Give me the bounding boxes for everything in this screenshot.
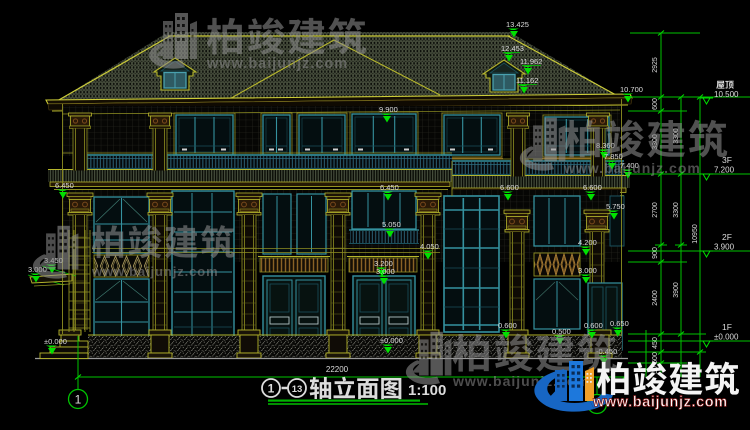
svg-text:www.baijunjz.com: www.baijunjz.com	[592, 395, 728, 411]
svg-text:13.425: 13.425	[506, 20, 529, 29]
svg-text:±0.000: ±0.000	[380, 336, 403, 345]
svg-text:13: 13	[292, 384, 303, 395]
svg-text:600: 600	[652, 98, 659, 110]
svg-text:1: 1	[75, 393, 82, 407]
svg-text:10.500: 10.500	[714, 90, 739, 99]
svg-text:4.200: 4.200	[578, 238, 597, 247]
svg-text:www.baijunjz.com: www.baijunjz.com	[206, 56, 348, 72]
svg-text:11.962: 11.962	[520, 57, 542, 66]
svg-text:900: 900	[652, 247, 659, 259]
svg-text:6.450: 6.450	[55, 181, 74, 190]
svg-text:11.162: 11.162	[516, 76, 538, 85]
svg-text:6.450: 6.450	[380, 183, 399, 192]
svg-text:±0.000: ±0.000	[714, 333, 739, 342]
svg-text:2F: 2F	[722, 232, 732, 242]
svg-text:10950: 10950	[692, 224, 699, 244]
svg-text:4.050: 4.050	[420, 242, 439, 251]
svg-text:5.050: 5.050	[382, 220, 401, 229]
svg-text:10.700: 10.700	[620, 85, 643, 94]
svg-text:3900: 3900	[673, 282, 680, 298]
svg-text:www.baijunjz.com: www.baijunjz.com	[91, 264, 219, 279]
svg-text:1F: 1F	[722, 322, 732, 332]
svg-text:www.baijunjz.com: www.baijunjz.com	[563, 160, 701, 176]
svg-text:0.600: 0.600	[498, 321, 517, 330]
svg-text:±0.000: ±0.000	[44, 337, 67, 346]
svg-text:6.600: 6.600	[583, 183, 602, 192]
svg-text:2925: 2925	[652, 57, 659, 73]
svg-text:3300: 3300	[673, 202, 680, 218]
svg-text:5.750: 5.750	[606, 202, 625, 211]
svg-text:22200: 22200	[326, 365, 349, 374]
svg-text:450: 450	[652, 337, 659, 349]
svg-text:6.600: 6.600	[500, 183, 519, 192]
svg-text:0.650: 0.650	[610, 319, 629, 328]
svg-text:9.900: 9.900	[379, 105, 398, 114]
svg-text:2400: 2400	[652, 290, 659, 306]
svg-text:2700: 2700	[652, 202, 659, 218]
svg-text:1: 1	[268, 382, 275, 396]
svg-text:3.900: 3.900	[714, 243, 735, 252]
svg-text:7.200: 7.200	[714, 166, 735, 175]
svg-text:3.000: 3.000	[376, 267, 395, 276]
svg-text:12.453: 12.453	[501, 44, 524, 53]
svg-text:3.000: 3.000	[578, 266, 597, 275]
svg-text:0.600: 0.600	[584, 321, 603, 330]
